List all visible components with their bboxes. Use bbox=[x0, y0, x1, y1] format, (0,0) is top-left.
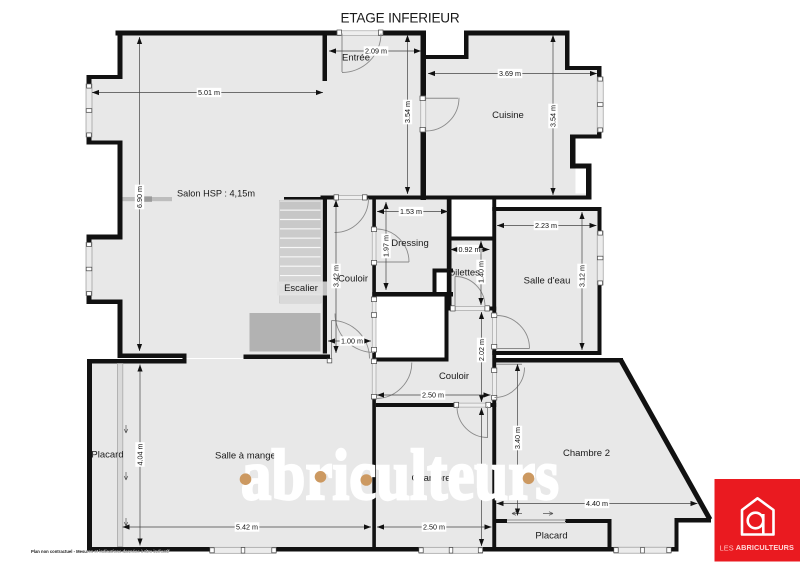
svg-text:5.01 m: 5.01 m bbox=[198, 88, 220, 97]
svg-text:Toilettes: Toilettes bbox=[445, 268, 480, 279]
svg-text:Salon HSP : 4,15m: Salon HSP : 4,15m bbox=[177, 189, 255, 199]
svg-text:4.40 m: 4.40 m bbox=[586, 499, 608, 508]
svg-text:Escalier: Escalier bbox=[284, 283, 318, 294]
svg-text:1.97 m: 1.97 m bbox=[382, 235, 391, 257]
svg-text:Placard: Placard bbox=[91, 450, 123, 461]
svg-text:2.50 m: 2.50 m bbox=[422, 391, 444, 400]
svg-text:0.92 m: 0.92 m bbox=[459, 245, 481, 254]
svg-text:2.02 m: 2.02 m bbox=[477, 339, 486, 361]
svg-text:3.69 m: 3.69 m bbox=[499, 69, 521, 78]
svg-text:Cuisine: Cuisine bbox=[492, 110, 524, 121]
svg-text:2.23 m: 2.23 m bbox=[535, 221, 557, 230]
svg-text:Chambre 2: Chambre 2 bbox=[563, 448, 610, 459]
svg-text:2.50 m: 2.50 m bbox=[423, 523, 445, 532]
svg-text:abriculteurs: abriculteurs bbox=[241, 435, 559, 515]
svg-text:ETAGE INFERIEUR: ETAGE INFERIEUR bbox=[340, 11, 459, 26]
svg-text:1.53 m: 1.53 m bbox=[400, 207, 422, 216]
svg-text:3.54 m: 3.54 m bbox=[549, 105, 558, 127]
svg-text:1.00 m: 1.00 m bbox=[341, 337, 363, 346]
svg-text:Entrée: Entrée bbox=[342, 53, 370, 64]
svg-text:5.42 m: 5.42 m bbox=[236, 523, 258, 532]
svg-text:Couloir: Couloir bbox=[338, 274, 368, 285]
svg-text:3.54 m: 3.54 m bbox=[403, 101, 412, 123]
svg-text:6.90 m: 6.90 m bbox=[135, 186, 144, 208]
svg-text:LES ABRICULTEURS: LES ABRICULTEURS bbox=[720, 543, 794, 552]
svg-text:Salle d'eau: Salle d'eau bbox=[524, 276, 571, 287]
svg-text:3.12 m: 3.12 m bbox=[578, 265, 587, 287]
svg-text:Dressing: Dressing bbox=[391, 238, 429, 249]
svg-text:Placard: Placard bbox=[535, 531, 567, 542]
svg-text:Couloir: Couloir bbox=[439, 371, 469, 382]
svg-text:4.04 m: 4.04 m bbox=[136, 444, 145, 466]
